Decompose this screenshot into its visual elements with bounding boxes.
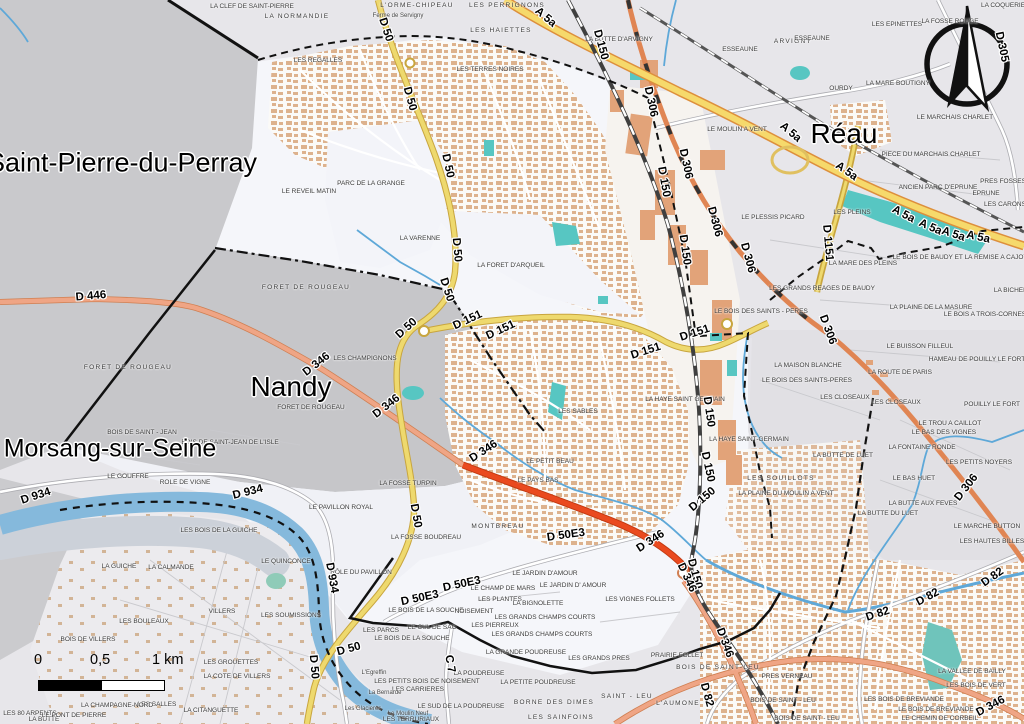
map-canvas: LA CLEF DE SAINT-PIERRELA NORMANDIEL'ORM…: [0, 0, 1024, 724]
scale-tick-half: 0,5: [90, 652, 110, 668]
scale-bar: 0 0,5 1 km: [30, 652, 220, 691]
map-graphics: [0, 0, 1024, 724]
scale-tick-one: 1 km: [152, 652, 183, 668]
scale-tick-zero: 0: [34, 652, 42, 668]
scale-bar-graphic: [38, 680, 165, 691]
scale-bar-fill: [39, 681, 102, 690]
